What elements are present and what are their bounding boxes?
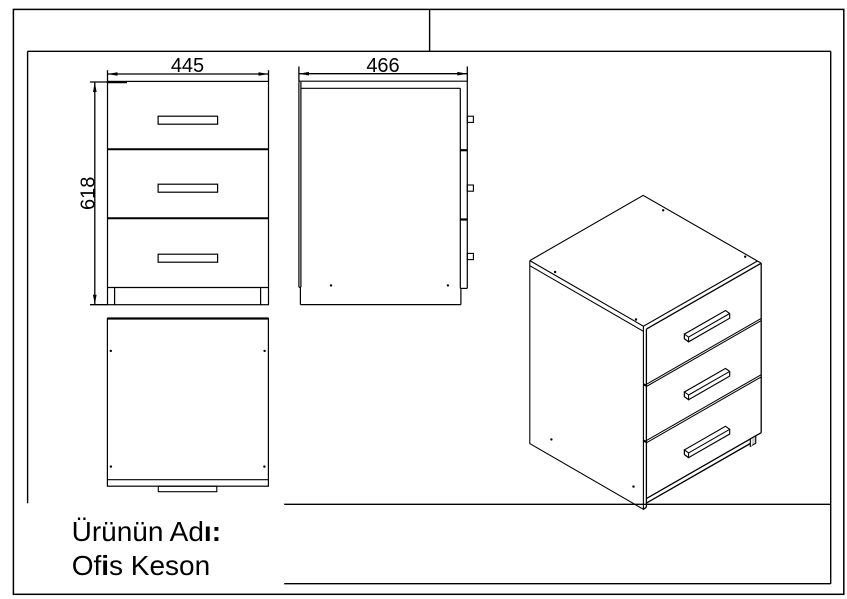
svg-text:445: 445 xyxy=(171,55,204,77)
svg-text:Ürünün Adı:: Ürünün Adı: xyxy=(72,516,221,547)
svg-text:Ofis Keson: Ofis Keson xyxy=(72,550,211,581)
svg-text:466: 466 xyxy=(366,55,399,77)
svg-text:618: 618 xyxy=(78,177,100,210)
